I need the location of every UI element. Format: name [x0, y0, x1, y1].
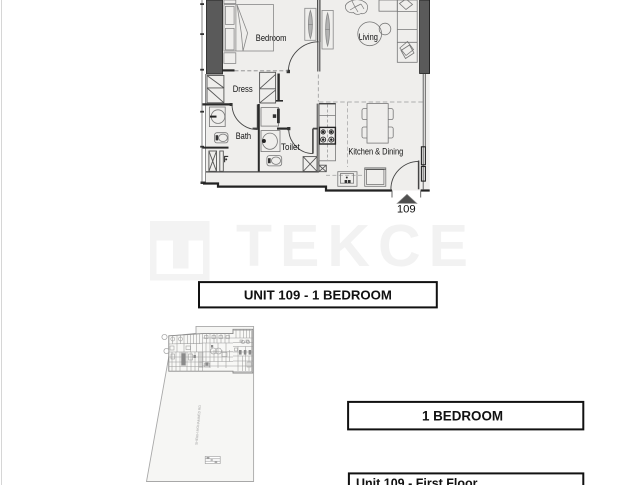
svg-text:UNIT 109 - 1 BEDROOM: UNIT 109 - 1 BEDROOM — [244, 287, 392, 302]
svg-text:Living: Living — [358, 32, 378, 42]
svg-text:109: 109 — [397, 204, 416, 216]
svg-text:Toilet: Toilet — [281, 142, 300, 152]
svg-text:Bath: Bath — [236, 131, 251, 141]
svg-text:Dress: Dress — [233, 84, 253, 94]
svg-text:1 BEDROOM: 1 BEDROOM — [422, 408, 503, 423]
svg-text:Kitchen & Dining: Kitchen & Dining — [348, 146, 403, 156]
svg-text:Bedroom: Bedroom — [256, 33, 287, 43]
svg-text:Unit 109 - First Floor: Unit 109 - First Floor — [356, 477, 478, 485]
svg-text:TEKCE: TEKCE — [236, 213, 476, 279]
